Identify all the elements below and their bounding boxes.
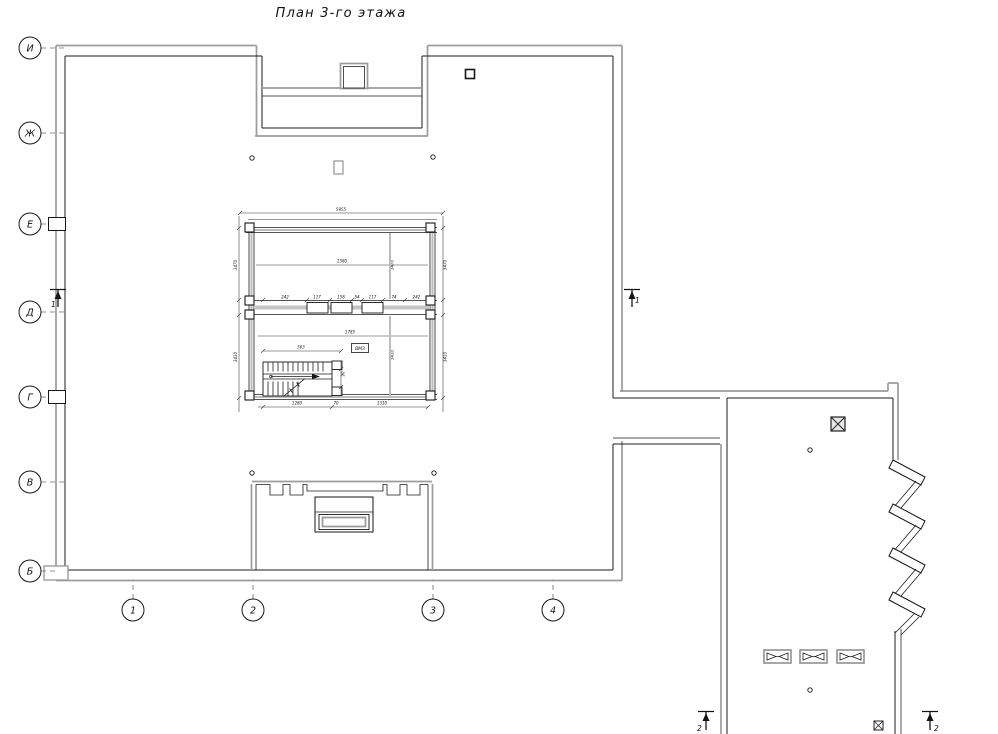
dim-stair: 563 [297, 345, 305, 350]
dim-right: 3470 [443, 259, 448, 270]
axis-marker-row-3: Д [19, 301, 41, 323]
dim-bottom: 1310 [377, 401, 388, 406]
dim-right: 3410 [443, 351, 448, 362]
dim-overall: 5955 [336, 207, 347, 212]
axis-marker-row-5: В [19, 471, 41, 493]
dim-left: 3470 [233, 259, 238, 270]
bottom-terrace-structures [250, 471, 436, 570]
core-label-box: ВМЗ [352, 344, 369, 353]
axis-label: Б [27, 567, 34, 578]
wall-opening [331, 303, 352, 314]
axis-label: Г [27, 393, 33, 404]
shaft-symbol-crossed-box [831, 417, 845, 431]
axis-marker-col-3: 4 [542, 599, 564, 621]
section-label: 1 [51, 300, 56, 309]
dim-bottom: 70 [333, 401, 339, 406]
row-axis-markers: И Ж Е Д Г В Б [19, 37, 66, 582]
dim-left: 3410 [233, 351, 238, 362]
core-label-text: ВМЗ [355, 346, 365, 352]
section-label: 1 [635, 296, 640, 305]
dim-newel: 90 [341, 371, 346, 377]
column-block [426, 296, 435, 305]
staircase: 90 [263, 361, 346, 396]
axis-label: 2 [250, 606, 256, 617]
ventilation-grille [800, 650, 827, 663]
wall-pilaster-G [49, 391, 66, 404]
column-axis-markers: 1 2 3 4 [122, 580, 564, 621]
axis-marker-row-1: Ж [19, 122, 41, 144]
axis-marker-row-6: Б [19, 560, 41, 582]
zigzag-stair-edge [889, 460, 925, 635]
dim-upper-room: 1580 [337, 259, 348, 264]
section-marker-2-left: 2 [697, 712, 714, 734]
section-arrow [927, 713, 934, 721]
section-arrow [703, 713, 710, 721]
wall-opening [362, 303, 383, 314]
dim-opening: 54 [354, 295, 360, 300]
axis-label: 1 [130, 606, 136, 617]
column-block [245, 223, 254, 232]
corner-wall-cap [44, 566, 68, 580]
dim-opening: 242 [413, 295, 421, 300]
column-block [245, 310, 254, 319]
axis-label: 3 [430, 606, 436, 617]
column-block [426, 391, 435, 400]
dim-bottom: 1280 [292, 401, 303, 406]
column-block [245, 296, 254, 305]
roof-hatch-square [466, 70, 475, 79]
section-label: 2 [697, 724, 702, 733]
axis-marker-row-0: И [19, 37, 41, 59]
ventilation-grille [764, 650, 791, 663]
page-title: План 3-го этажа [276, 6, 407, 21]
small-shaft-rect [334, 161, 343, 174]
axis-label: В [27, 478, 34, 489]
right-annex [613, 383, 925, 734]
stair-core-detail: 5955 1580 1785 563 242 117 158 54 117 74… [233, 207, 448, 412]
section-marker-1-right: 1 [624, 290, 640, 308]
section-label: 2 [934, 724, 939, 733]
axis-marker-row-4: Г [19, 386, 41, 408]
wall-pilaster-E [49, 218, 66, 231]
dim-opening: 242 [281, 295, 289, 300]
column-block [245, 391, 254, 400]
column-marker [808, 448, 812, 452]
column-marker [808, 688, 812, 692]
dim-opening: 158 [337, 295, 345, 300]
column-marker [431, 155, 435, 159]
axis-marker-col-1: 2 [242, 599, 264, 621]
shaft-symbol-crossed-box-small [874, 721, 883, 730]
column-marker [432, 471, 436, 475]
axis-label: Е [27, 220, 33, 231]
axis-label: 4 [550, 606, 556, 617]
axis-marker-col-2: 3 [422, 599, 444, 621]
chimney-shaft [341, 64, 368, 89]
floor-plan-drawing: План 3-го этажа И [0, 0, 998, 734]
floor-plan-sheet: План 3-го этажа И [0, 0, 998, 734]
dim-opening: 117 [313, 295, 321, 300]
column-block [426, 310, 435, 319]
axis-marker-col-0: 1 [122, 599, 144, 621]
wall-opening [307, 303, 328, 314]
newel-block [332, 387, 342, 396]
newel-block [332, 361, 342, 370]
axis-marker-row-2: Е [19, 213, 41, 235]
dim-lower-room: 1785 [345, 330, 356, 335]
dim-opening: 74 [391, 295, 397, 300]
column-marker [250, 471, 254, 475]
axis-label: И [26, 44, 33, 55]
axis-label: Д [25, 308, 33, 319]
column-block [426, 223, 435, 232]
axis-label: Ж [24, 129, 36, 140]
ventilation-grille [837, 650, 864, 663]
dim-opening: 117 [369, 295, 377, 300]
column-marker [250, 156, 254, 160]
section-marker-1-left: 1 [50, 290, 66, 310]
section-marker-2-right: 2 [922, 712, 939, 734]
top-recess-structures [250, 64, 475, 175]
